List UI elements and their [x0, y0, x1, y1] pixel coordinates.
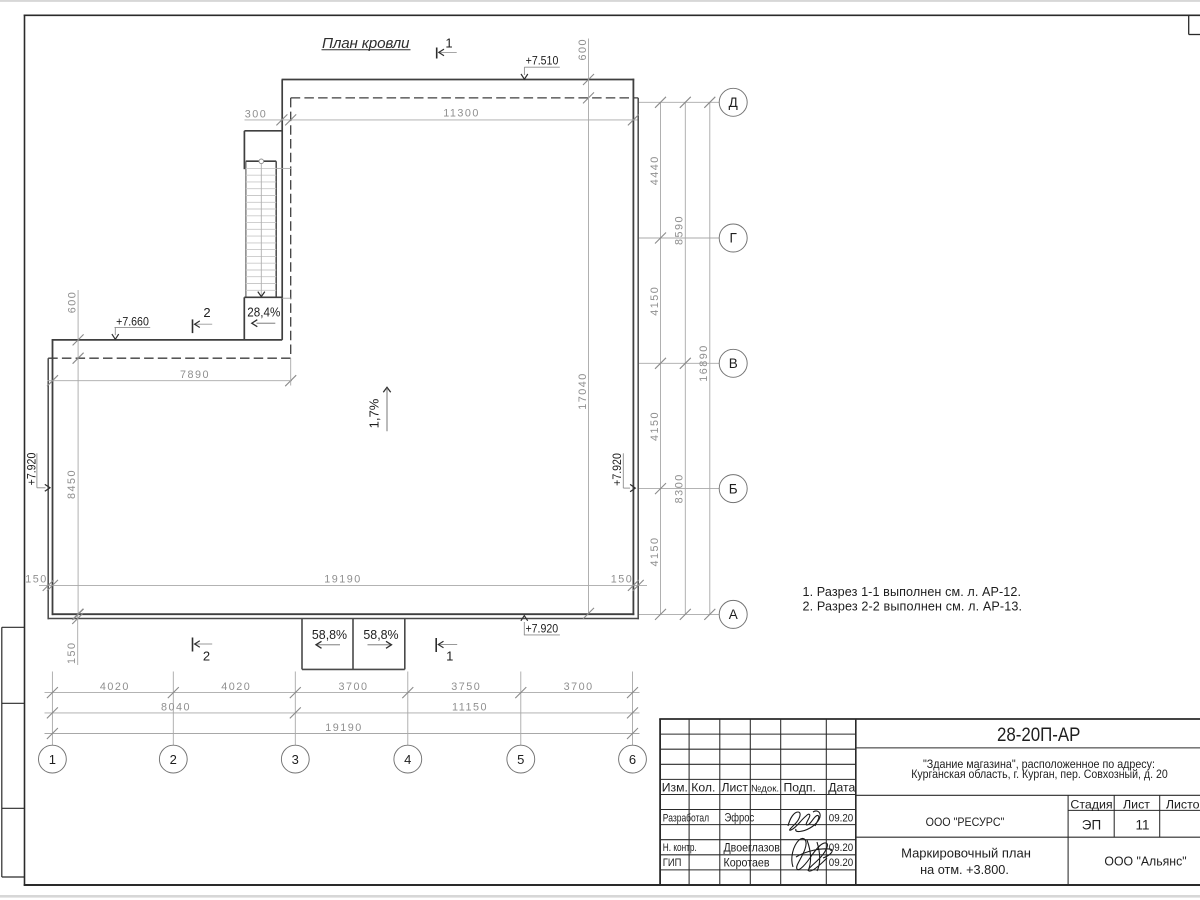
svg-text:28-20П-АР: 28-20П-АР [997, 724, 1081, 746]
svg-text:Н. контр.: Н. контр. [663, 842, 697, 854]
svg-text:Д: Д [729, 95, 738, 110]
svg-text:09.20: 09.20 [829, 842, 854, 854]
svg-text:Подп.: Подп. [784, 781, 816, 795]
svg-text:600: 600 [577, 38, 589, 61]
svg-text:Разработал: Разработал [663, 812, 709, 824]
svg-text:3: 3 [292, 752, 299, 767]
svg-text:4150: 4150 [649, 411, 661, 441]
svg-text:28,4%: 28,4% [247, 305, 280, 320]
svg-text:11300: 11300 [443, 108, 480, 120]
svg-text:19190: 19190 [324, 574, 362, 586]
svg-text:8040: 8040 [161, 701, 191, 713]
svg-text:4: 4 [404, 752, 411, 767]
svg-text:+7.920: +7.920 [610, 453, 624, 486]
svg-text:ЭП: ЭП [1082, 817, 1101, 832]
svg-text:Б: Б [729, 481, 738, 496]
svg-text:58,8%: 58,8% [363, 627, 398, 642]
svg-text:Дата: Дата [828, 781, 855, 795]
svg-text:2: 2 [203, 305, 210, 320]
svg-text:4020: 4020 [221, 681, 251, 693]
svg-text:300: 300 [245, 108, 268, 120]
svg-text:ООО "РЕСУРС": ООО "РЕСУРС" [926, 815, 1005, 829]
svg-text:+7.660: +7.660 [116, 315, 149, 329]
svg-text:16890: 16890 [698, 344, 710, 382]
svg-text:6: 6 [629, 752, 636, 767]
svg-text:1: 1 [445, 36, 452, 51]
svg-text:1: 1 [49, 752, 56, 767]
svg-text:№док.: №док. [751, 784, 779, 795]
svg-text:ГИП: ГИП [663, 857, 682, 869]
svg-text:09.20: 09.20 [829, 857, 854, 869]
svg-text:7890: 7890 [180, 369, 210, 381]
svg-text:А: А [729, 607, 738, 622]
svg-text:Коротаев: Коротаев [724, 856, 770, 869]
svg-text:+7.920: +7.920 [525, 622, 558, 636]
svg-text:Лист: Лист [1123, 798, 1150, 812]
svg-text:11: 11 [1135, 817, 1149, 832]
svg-text:Курганская область, г. Курган,: Курганская область, г. Курган, пер. Совх… [911, 767, 1168, 781]
svg-text:4020: 4020 [100, 681, 130, 693]
svg-text:Изм.: Изм. [662, 781, 688, 795]
svg-text:09.20: 09.20 [829, 812, 854, 824]
svg-text:+7.920: +7.920 [24, 452, 38, 485]
svg-text:2: 2 [170, 752, 177, 767]
svg-text:11150: 11150 [452, 701, 488, 713]
svg-text:Листов: Листов [1166, 798, 1200, 812]
svg-text:Эфрос: Эфрос [725, 811, 755, 825]
svg-text:8590: 8590 [674, 215, 686, 245]
svg-text:Г: Г [730, 231, 738, 246]
svg-text:ООО "Альянс": ООО "Альянс" [1104, 854, 1186, 869]
svg-text:600: 600 [67, 291, 79, 314]
svg-text:4440: 4440 [649, 155, 661, 185]
svg-text:В: В [729, 356, 738, 371]
svg-text:1. Разрез 1-1 выполнен см. л.: 1. Разрез 1-1 выполнен см. л. АР-12. [803, 585, 1022, 599]
svg-text:8300: 8300 [674, 473, 686, 503]
svg-text:17040: 17040 [577, 372, 589, 410]
svg-text:150: 150 [66, 641, 78, 664]
svg-text:2. Разрез 2-2 выполнен см. л.: 2. Разрез 2-2 выполнен см. л. АР-13. [803, 599, 1023, 613]
svg-text:150: 150 [25, 574, 48, 586]
svg-text:8450: 8450 [66, 469, 78, 499]
svg-text:Двоеглазов: Двоеглазов [724, 841, 780, 854]
svg-text:19190: 19190 [325, 722, 363, 734]
svg-text:1: 1 [446, 649, 453, 664]
svg-text:2: 2 [203, 649, 210, 664]
svg-text:на отм. +3.800.: на отм. +3.800. [920, 862, 1009, 877]
svg-text:5: 5 [517, 752, 524, 767]
svg-text:4150: 4150 [649, 286, 661, 316]
svg-text:3700: 3700 [339, 681, 369, 693]
svg-text:Стадия: Стадия [1070, 798, 1112, 812]
svg-text:4150: 4150 [649, 536, 661, 566]
svg-text:Маркировочный план: Маркировочный план [901, 846, 1031, 861]
svg-text:58,8%: 58,8% [312, 627, 347, 642]
svg-text:Кол.: Кол. [691, 781, 715, 795]
svg-text:Лист: Лист [722, 781, 749, 795]
svg-text:3750: 3750 [451, 681, 481, 693]
svg-text:150: 150 [611, 574, 634, 586]
svg-text:3700: 3700 [564, 681, 594, 693]
svg-text:+7.510: +7.510 [526, 53, 559, 67]
svg-text:1,7%: 1,7% [367, 398, 382, 428]
